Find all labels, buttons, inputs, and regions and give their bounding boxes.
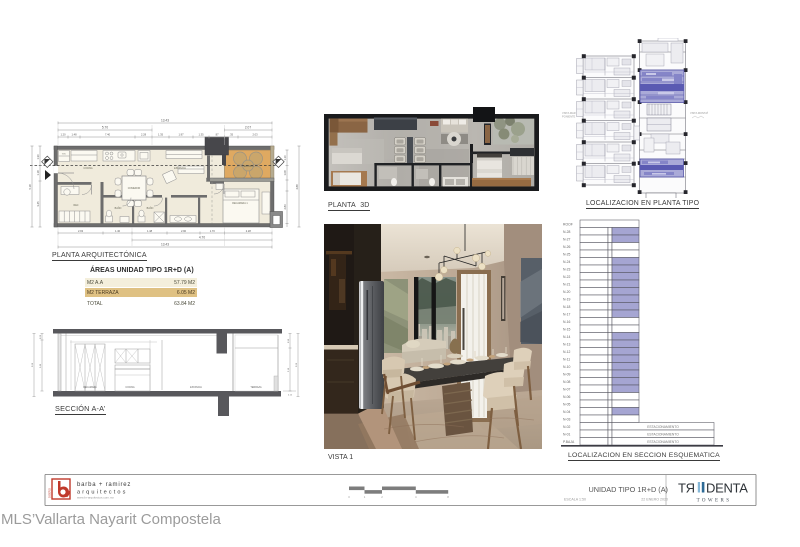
svg-text:5.18: 5.18 <box>28 184 32 190</box>
svg-text:N-27: N-27 <box>563 238 570 242</box>
svg-text:22 ENERO 2020: 22 ENERO 2020 <box>641 498 668 502</box>
svg-text:N-25: N-25 <box>563 253 570 257</box>
svg-text:ESTANCIA: ESTANCIA <box>190 386 202 389</box>
svg-text:N-10: N-10 <box>563 365 570 369</box>
svg-text:0: 0 <box>348 495 350 499</box>
svg-text:3.45: 3.45 <box>36 201 40 207</box>
svg-text:2.40: 2.40 <box>40 363 42 368</box>
svg-text:1.70: 1.70 <box>210 229 216 233</box>
svg-text:N-14: N-14 <box>563 335 570 339</box>
svg-text:2: 2 <box>381 495 383 499</box>
svg-text:2.28: 2.28 <box>246 229 252 233</box>
svg-text:0.90: 0.90 <box>288 338 290 343</box>
svg-text:3.00: 3.00 <box>296 362 298 367</box>
svg-text:1.20: 1.20 <box>60 132 66 136</box>
svg-text:BAÑO: BAÑO <box>115 207 122 210</box>
svg-text:COCINA: COCINA <box>125 386 135 389</box>
svg-text:TOWERS: TOWERS <box>697 499 732 504</box>
svg-text:DISEÑO: DISEÑO <box>47 488 52 498</box>
svg-text:W/D: W/D <box>62 154 67 156</box>
svg-text:N-28: N-28 <box>563 230 570 234</box>
svg-text:2.93: 2.93 <box>78 229 84 233</box>
svg-text:1: 1 <box>364 495 366 499</box>
svg-text:4: 4 <box>415 495 417 499</box>
svg-text:N-26: N-26 <box>563 245 570 249</box>
svg-text:1.18: 1.18 <box>36 170 40 176</box>
svg-text:4.70: 4.70 <box>199 236 205 240</box>
svg-text:N-06: N-06 <box>563 395 570 399</box>
svg-text:N-22: N-22 <box>563 275 570 279</box>
svg-text:N-05: N-05 <box>563 403 570 407</box>
svg-text:5.70: 5.70 <box>102 126 108 130</box>
svg-text:COCINA: COCINA <box>83 167 93 170</box>
svg-text:1.48: 1.48 <box>71 132 77 136</box>
svg-text:N-08: N-08 <box>563 380 570 384</box>
svg-text:ESTACIONAMIENTO: ESTACIONAMIENTO <box>647 440 679 444</box>
svg-text:N-24: N-24 <box>563 260 570 264</box>
svg-text:2.28: 2.28 <box>141 132 147 136</box>
svg-text:N-04: N-04 <box>563 410 570 414</box>
svg-text:VISTA MONTAÑA: VISTA MONTAÑA <box>690 110 708 115</box>
svg-text:N-21: N-21 <box>563 283 570 287</box>
svg-text:.35: .35 <box>229 132 233 136</box>
svg-text:N-07: N-07 <box>563 388 570 392</box>
svg-text:N-13: N-13 <box>563 343 570 347</box>
svg-text:BAÑO: BAÑO <box>147 207 154 210</box>
svg-text:0.60: 0.60 <box>40 334 42 339</box>
svg-text:RECAMARA: RECAMARA <box>83 386 97 389</box>
svg-text:REC: REC <box>73 204 78 207</box>
svg-text:13.43: 13.43 <box>161 119 169 123</box>
svg-text:UNIDAD TIPO 1R+D (A): UNIDAD TIPO 1R+D (A) <box>588 485 668 494</box>
svg-text:N-19: N-19 <box>563 298 570 302</box>
svg-text:1.35: 1.35 <box>158 132 164 136</box>
svg-text:ROOF: ROOF <box>563 223 573 227</box>
svg-text:barba + ramirez: barba + ramirez <box>77 482 131 488</box>
svg-text:N-03: N-03 <box>563 418 570 422</box>
svg-text:1.35: 1.35 <box>198 132 204 136</box>
svg-text:ESTACIONAMIENTO: ESTACIONAMIENTO <box>647 425 679 429</box>
svg-text:2.07: 2.07 <box>245 126 251 130</box>
svg-text:PONIENTE: PONIENTE <box>562 115 576 119</box>
svg-text:N-09: N-09 <box>563 373 570 377</box>
svg-text:DENTA: DENTA <box>706 481 748 496</box>
svg-text:ESTANCIA: ESTANCIA <box>174 167 186 170</box>
svg-text:N-11: N-11 <box>563 358 570 362</box>
svg-text:N-12: N-12 <box>563 350 570 354</box>
svg-text:P.BAJA: P.BAJA <box>563 440 575 444</box>
svg-text:1.10: 1.10 <box>283 155 287 161</box>
svg-text:N-16: N-16 <box>563 320 570 324</box>
svg-text:13.43: 13.43 <box>161 243 169 247</box>
svg-text:7.40: 7.40 <box>105 132 111 136</box>
svg-text:2.90: 2.90 <box>181 229 187 233</box>
svg-text:TЯ: TЯ <box>678 481 695 496</box>
svg-text:N-01: N-01 <box>563 433 570 437</box>
svg-text:TERRAZA: TERRAZA <box>250 386 262 389</box>
svg-text:3.00: 3.00 <box>32 362 34 367</box>
svg-text:2.10: 2.10 <box>288 367 290 372</box>
svg-text:ESTACIONAMIENTO: ESTACIONAMIENTO <box>647 433 679 437</box>
svg-text:8: 8 <box>447 495 449 499</box>
svg-text:2.03: 2.03 <box>252 132 258 136</box>
svg-text:N-20: N-20 <box>563 290 570 294</box>
svg-text:COMEDOR: COMEDOR <box>128 187 141 190</box>
svg-text:N-17: N-17 <box>563 313 570 317</box>
svg-text:.97: .97 <box>215 132 219 136</box>
svg-text:0.15: 0.15 <box>288 395 293 397</box>
svg-text:1.40: 1.40 <box>115 229 121 233</box>
svg-text:1.08: 1.08 <box>283 170 287 176</box>
svg-text:1.30: 1.30 <box>36 154 40 160</box>
svg-text:www.br-arquitectos.com.mx: www.br-arquitectos.com.mx <box>77 496 114 500</box>
svg-text:4.88: 4.88 <box>295 184 299 190</box>
svg-text:ESCALA 1:50: ESCALA 1:50 <box>564 498 586 502</box>
svg-text:N-23: N-23 <box>563 268 570 272</box>
svg-text:N-02: N-02 <box>563 425 570 429</box>
svg-text:N-18: N-18 <box>563 305 570 309</box>
svg-text:1.97: 1.97 <box>178 132 184 136</box>
svg-text:RECAMARA 1: RECAMARA 1 <box>232 202 248 205</box>
svg-text:1.48: 1.48 <box>147 229 153 233</box>
svg-text:VISTA MAR: VISTA MAR <box>562 111 576 115</box>
svg-text:2.83: 2.83 <box>283 204 287 210</box>
svg-text:N-15: N-15 <box>563 328 570 332</box>
